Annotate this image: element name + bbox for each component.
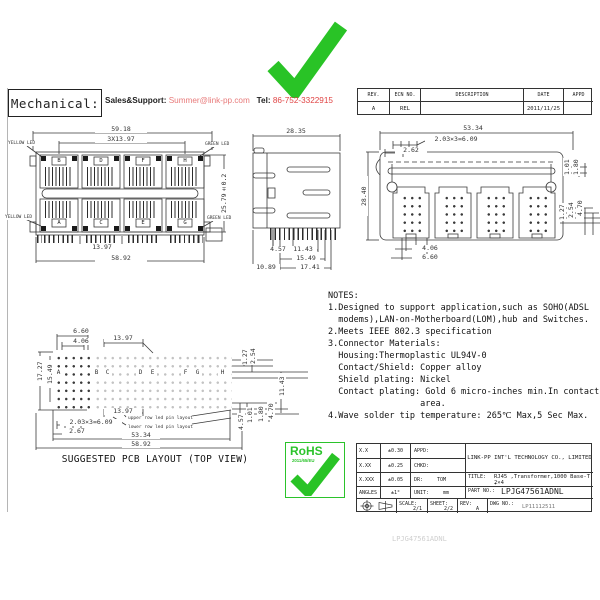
notes-block: NOTES: 1.Designed to support application… — [328, 290, 599, 422]
notes-line: Contact/Shield: Copper alloy — [328, 362, 599, 374]
rohs-label: RoHS — [290, 444, 323, 458]
notes-line: NOTES: — [328, 290, 599, 302]
dim-pcb-d2: 4.06 — [64, 338, 98, 345]
appd-value — [564, 102, 593, 115]
dim-bv-r4: 2.54 — [567, 200, 575, 220]
green-led-label-bottom: GREEN LED — [207, 216, 231, 221]
revision-table: REV. ECN NO. DESCRIPTION DATE APPD A REL… — [357, 88, 592, 115]
notes-line: 3.Connector Materials: — [328, 338, 599, 350]
rev-label: REV: — [460, 501, 472, 507]
rev-value: A — [476, 506, 479, 512]
rohs-directive: 2011/65/EU — [292, 458, 314, 463]
notes-line: 1.Designed to support application,such a… — [328, 302, 599, 314]
dim-pcb-d3: 13.97 — [104, 335, 142, 342]
rev-col-header: REV. — [358, 89, 390, 102]
dim-bv-r3: 1.27 — [558, 203, 566, 221]
title-line1: RJ45 ,Transformer,1000 Base-T , — [494, 474, 593, 486]
tol-label: X.XX — [357, 459, 381, 473]
dim-pcb-b4: 53.34 — [122, 432, 160, 439]
date-value: 2011/11/25 — [524, 102, 564, 115]
pcb-port-letter: E — [148, 369, 157, 376]
dwg-no-label: DWG NO.: — [490, 501, 514, 507]
lower-row-led-label: lower row led pin layout — [128, 425, 193, 430]
port-label: C — [94, 219, 108, 227]
dim-bv-width: 53.34 — [447, 125, 499, 132]
port-contacts — [45, 201, 73, 218]
dim-pin2: 11.43 — [289, 246, 317, 253]
solder-pins — [170, 235, 200, 243]
pcb-port-letter: A — [54, 369, 63, 376]
notes-line: Contact plating: Gold 6 micro-inches min… — [328, 386, 599, 398]
yellow-led-label-bottom: YELLOW LED — [5, 215, 32, 220]
dim-pcb-br4: 4.70 — [267, 402, 275, 420]
pcb-port-letter: D — [136, 369, 145, 376]
tol-value: ±0.05 — [381, 473, 411, 487]
rev-value: A — [358, 102, 390, 115]
date-col-header: DATE — [524, 89, 564, 102]
port-contacts — [87, 167, 115, 186]
dim-pin1: 4.57 — [266, 246, 290, 253]
pin-grid — [525, 192, 551, 234]
port-label: A — [52, 219, 66, 227]
tol-label: ANGLES — [357, 487, 381, 499]
dim-pcb-br1: 4.57 — [237, 413, 245, 431]
pcb-port-letter: C — [103, 369, 112, 376]
description-col-header: DESCRIPTION — [421, 89, 524, 102]
appd-col-header: APPD — [564, 89, 593, 102]
port-label: G — [178, 219, 192, 227]
footer-watermark: LPJG47561ADNL — [392, 535, 447, 543]
rohs-logo: RoHS 2011/65/EU — [285, 442, 345, 498]
dim-height: 25.79±0.2 — [220, 169, 228, 217]
title-line2: 2×4 — [494, 480, 504, 486]
dr-label: DR: — [414, 477, 423, 483]
port-label: B — [52, 157, 66, 165]
dim-bv-r1: 1.01 — [563, 158, 571, 176]
port-label: D — [94, 157, 108, 165]
pin-grid — [441, 192, 467, 234]
notes-line: Housing:Thermoplastic UL94V-0 — [328, 350, 599, 362]
notes-line: Shield plating: Nickel — [328, 374, 599, 386]
dim-pcb-left2: 15.49 — [46, 360, 54, 388]
dim-bv-r2: 1.80 — [572, 158, 580, 176]
company-name: LINK-PP INT'L TECHNOLOGY CO., LIMITED — [466, 444, 593, 473]
pcb-holes-dark — [53, 352, 90, 409]
port-contacts — [87, 201, 115, 218]
dim-pcb-left1: 17.27 — [36, 356, 44, 386]
dim-pcb-br2: 1.01 — [246, 407, 254, 423]
tol-label: X.X — [357, 444, 381, 459]
port-label: E — [136, 219, 150, 227]
solder-pins — [44, 235, 74, 243]
part-no-value: LPJG47561ADNL — [501, 489, 564, 495]
dwg-no-cell: DWG NO.: LP11112511 — [488, 499, 593, 513]
appd-label: APPD: — [411, 444, 466, 459]
dim-pcb-b3: 13.97 — [104, 408, 142, 415]
dim-bv-post-a: 4.06 — [412, 245, 448, 252]
unit-value: mm — [443, 490, 449, 496]
green-led-label-top: GREEN LED — [205, 142, 229, 147]
tol-label: X.XXX — [357, 473, 381, 487]
solder-pins — [128, 235, 158, 243]
dim-pcb-r1: 1.27 — [241, 349, 249, 365]
dim-bv-post-b: 6.60 — [412, 254, 448, 261]
tol-value: ±1° — [381, 487, 411, 499]
dim-pcb-b1: 2.03×3=6.09 — [60, 419, 122, 426]
description-value — [421, 102, 524, 115]
port-label: H — [178, 157, 192, 165]
dim-port-pitch: 13.97 — [79, 244, 125, 251]
unit-cell: UNIT: mm — [411, 487, 466, 499]
solder-pins — [86, 235, 116, 243]
datasheet-page: Mechanical: Sales&Support: Summer@link-p… — [0, 0, 600, 600]
port-contacts — [171, 201, 199, 218]
tel-label: Tel: — [257, 96, 271, 105]
mechanical-title-box: Mechanical: — [8, 89, 102, 117]
dim-pin3: 15.49 — [292, 255, 320, 262]
tol-value: ±0.30 — [381, 444, 411, 459]
dim-bv-pin-pitch: 2.03×3=6.09 — [425, 136, 487, 143]
support-email: Summer@link-pp.com — [169, 96, 250, 105]
title-cell: TITLE: RJ45 ,Transformer,1000 Base-T , 2… — [466, 473, 593, 487]
sheet-value: 2/2 — [444, 506, 453, 512]
notes-line: 2.Meets IEEE 802.3 specification — [328, 326, 599, 338]
dim-pcb-r3: 11.43 — [278, 373, 286, 399]
scale-cell: SCALE: 2/1 — [397, 499, 428, 513]
green-checkmark-icon — [265, 20, 349, 98]
dim-overall-width: 59.18 — [95, 126, 147, 133]
mechanical-label: Mechanical: — [11, 96, 99, 111]
dim-pcb-r2: 2.54 — [249, 347, 257, 365]
dr-value: TOM — [437, 477, 446, 483]
pin-grid — [399, 192, 425, 234]
part-no-cell: PART NO.: LPJG47561ADNL — [466, 487, 593, 499]
chkd-label: CHKD: — [411, 459, 466, 473]
sheet-cell: SHEET: 2/2 — [428, 499, 458, 513]
port-contacts — [171, 167, 199, 186]
title-block: X.X ±0.30 APPD: LINK-PP INT'L TECHNOLOGY… — [356, 443, 592, 512]
solder-pins — [37, 235, 42, 243]
notes-line: 4.Wave solder tip temperature: 265℃ Max,… — [328, 410, 599, 422]
dim-pcb-b2: 2.67 — [62, 428, 92, 435]
port-contacts — [45, 167, 73, 186]
ecn-col-header: ECN NO. — [390, 89, 421, 102]
dim-port-pitch-total: 3X13.97 — [95, 136, 147, 143]
sales-label: Sales&Support: — [105, 96, 166, 105]
dim-pcb-d1: 6.60 — [64, 328, 98, 335]
sales-support-line: Sales&Support: Summer@link-pp.com Tel: 8… — [105, 96, 333, 105]
port-contacts — [129, 201, 157, 218]
pcb-port-letter: F — [181, 369, 190, 376]
dim-body-width: 58.92 — [95, 255, 147, 262]
rev-cell: REV: A — [458, 499, 488, 513]
solder-pins — [198, 235, 203, 243]
dim-bv-edge: 2.62 — [395, 147, 427, 154]
projection-symbol-icon — [359, 500, 395, 512]
port-label: F — [136, 157, 150, 165]
port-contacts — [129, 167, 157, 186]
dr-cell: DR: TOM — [411, 473, 466, 487]
notes-line: modems),LAN-on-Motherboard(LOM),hub and … — [328, 314, 599, 326]
dim-body: 10.89 — [252, 264, 280, 271]
unit-label: UNIT: — [414, 490, 429, 496]
pcb-port-letter: B — [92, 369, 101, 376]
part-no-label: PART NO.: — [468, 488, 495, 494]
dim-pcb-br3: 1.80 — [257, 406, 265, 422]
dim-pin4: 17.41 — [296, 264, 324, 271]
dim-depth: 28.35 — [271, 128, 321, 135]
pcb-port-letter: G — [193, 369, 202, 376]
yellow-led-label-top: YELLOW LED — [8, 141, 35, 146]
ecn-value: REL — [390, 102, 421, 115]
side-view-pins — [270, 228, 336, 240]
dim-pcb-b5: 58.92 — [122, 441, 160, 448]
pin-grid — [483, 192, 509, 234]
dwg-no-value: LP11112511 — [522, 504, 555, 510]
title-label: TITLE: — [468, 474, 486, 480]
tel-number: 86-752-3322915 — [273, 96, 333, 105]
scale-value: 2/1 — [413, 506, 422, 512]
projection-cell — [357, 499, 397, 513]
notes-line: area. — [328, 398, 599, 410]
dim-bv-depth: 28.40 — [360, 176, 368, 216]
pcb-port-letter: H — [218, 369, 227, 376]
tol-value: ±0.25 — [381, 459, 411, 473]
dim-bv-r5: 4.70 — [576, 197, 584, 219]
pcb-holes-light — [92, 352, 232, 409]
pcb-layout-caption: SUGGESTED PCB LAYOUT (TOP VIEW) — [50, 454, 260, 465]
upper-row-led-label: upper row led pin layout — [128, 416, 193, 421]
